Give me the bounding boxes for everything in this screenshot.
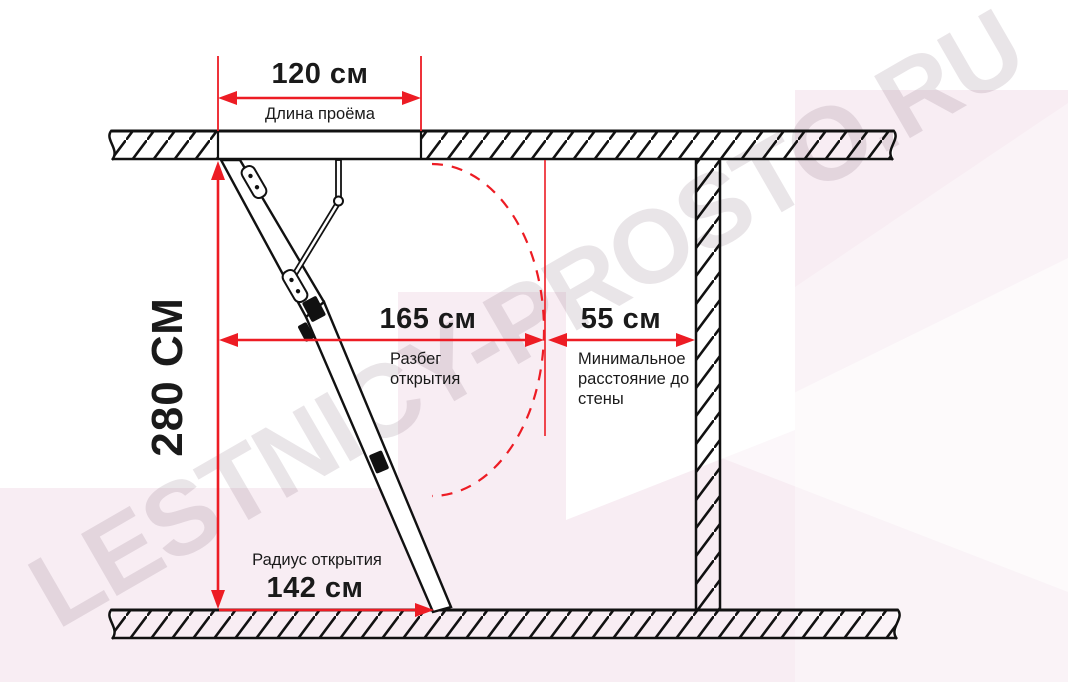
ladder-folding-arm [293,160,343,277]
dimension-arrow-height [211,161,225,609]
dimension-arrow-opening [218,91,421,105]
dimension-spread-value: 165 см [348,303,508,336]
ceiling-slab [109,130,895,160]
dimension-spread-label: Разбег открытия [390,349,500,389]
dimension-wall-distance-value: 55 см [560,303,682,336]
attic-ladder-dimension-diagram: LESTNICY-PROSTO.RU [0,0,1068,682]
dimension-opening-value: 120 см [218,58,422,91]
ladder-upper-section [221,160,324,317]
dimension-height-value: 280 СМ [138,277,198,477]
dimension-wall-distance-label: Минимальное расстояние до стены [578,349,696,409]
dimension-radius-label: Радиус открытия [237,550,397,570]
floor-slab [109,609,899,639]
wall-column [696,159,720,610]
dimension-opening-label: Длина проёма [218,104,422,124]
dimension-radius-value: 142 см [235,572,395,605]
